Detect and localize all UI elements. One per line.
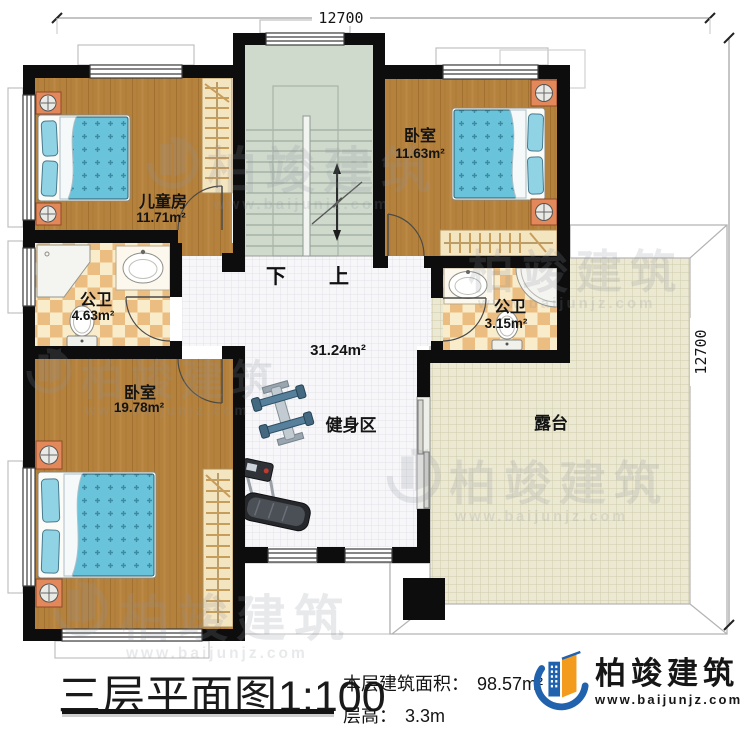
pillow [41, 161, 58, 197]
stair-up-label: 上 [329, 265, 349, 288]
pillow [527, 157, 543, 195]
window [266, 33, 344, 45]
window [23, 95, 35, 220]
watermark-text: 柏竣建筑 [81, 357, 281, 404]
pillow [41, 479, 59, 523]
dimension-top-value: 12700 [318, 9, 363, 27]
window-sill [8, 241, 23, 313]
window [345, 549, 392, 562]
hall-floor-upper [182, 256, 431, 346]
watermark-text: 柏竣建筑 [120, 591, 352, 647]
witness-lines [57, 18, 710, 34]
pillow [41, 530, 59, 574]
bed-icon [452, 108, 545, 200]
window [23, 248, 35, 306]
wall [417, 509, 430, 563]
window [443, 65, 538, 79]
floor-plan-page: 柏竣建筑 www.baijunjz.com 柏竣建筑 www.baijunjz.… [0, 0, 750, 729]
bed-icon [38, 472, 156, 578]
wall [23, 629, 62, 641]
wall [373, 256, 388, 268]
nightstand-icon [36, 92, 61, 114]
window-sill [8, 88, 23, 227]
window [90, 65, 182, 78]
wall [23, 230, 178, 243]
floor-plan-drawing: 柏竣建筑 www.baijunjz.com 柏竣建筑 www.baijunjz.… [0, 0, 750, 729]
gym-zone-label: 健身区 [326, 415, 377, 435]
sink-icon [116, 246, 170, 290]
wall [431, 256, 443, 298]
wall [557, 65, 570, 363]
children-room-area: 11.71m² [136, 210, 186, 225]
bedroom-bottom-left-area: 19.78m² [114, 400, 165, 415]
watermark-url: www.baijunjz.com [212, 196, 390, 213]
terrace-label: 露台 [534, 413, 568, 433]
nightstand-icon [36, 203, 61, 225]
window-sill [8, 461, 23, 593]
wall [317, 547, 345, 563]
window [23, 468, 35, 586]
wall [233, 547, 268, 563]
watermark-url: www.baijunjz.com [84, 403, 250, 418]
hall-area-label: 31.24m² [310, 342, 366, 359]
children-room-label: 儿童房 [138, 192, 187, 211]
bath-left-label: 公卫 [80, 291, 112, 309]
wall [417, 350, 570, 363]
window [268, 549, 317, 562]
wall [170, 243, 182, 297]
wall [222, 253, 245, 272]
bedroom-top-right-area: 11.63m² [395, 146, 445, 161]
pillow [41, 121, 58, 157]
bath-right-area: 3.15m² [485, 316, 528, 331]
column [403, 578, 445, 620]
stair-down-label: 下 [266, 266, 286, 288]
pillow [527, 114, 543, 152]
watermark-url: www.baijunjz.com [454, 509, 628, 525]
nightstand-icon [531, 199, 557, 225]
nightstand-icon [531, 80, 557, 106]
bath-right-label: 公卫 [494, 298, 526, 316]
watermark-text: 柏竣建筑 [449, 457, 669, 510]
nightstand-icon [36, 441, 62, 469]
watermark-text: 柏竣建筑 [468, 246, 684, 298]
nightstand-icon [36, 579, 62, 607]
bed-icon [38, 115, 130, 201]
watermark-url: www.baijunjz.com [125, 645, 308, 662]
bedroom-top-right-label: 卧室 [404, 126, 436, 145]
window-sill [78, 45, 194, 65]
bath-left-area: 4.63m² [72, 308, 115, 323]
dimension-right-value: 12700 [692, 329, 710, 374]
wall [417, 350, 430, 397]
